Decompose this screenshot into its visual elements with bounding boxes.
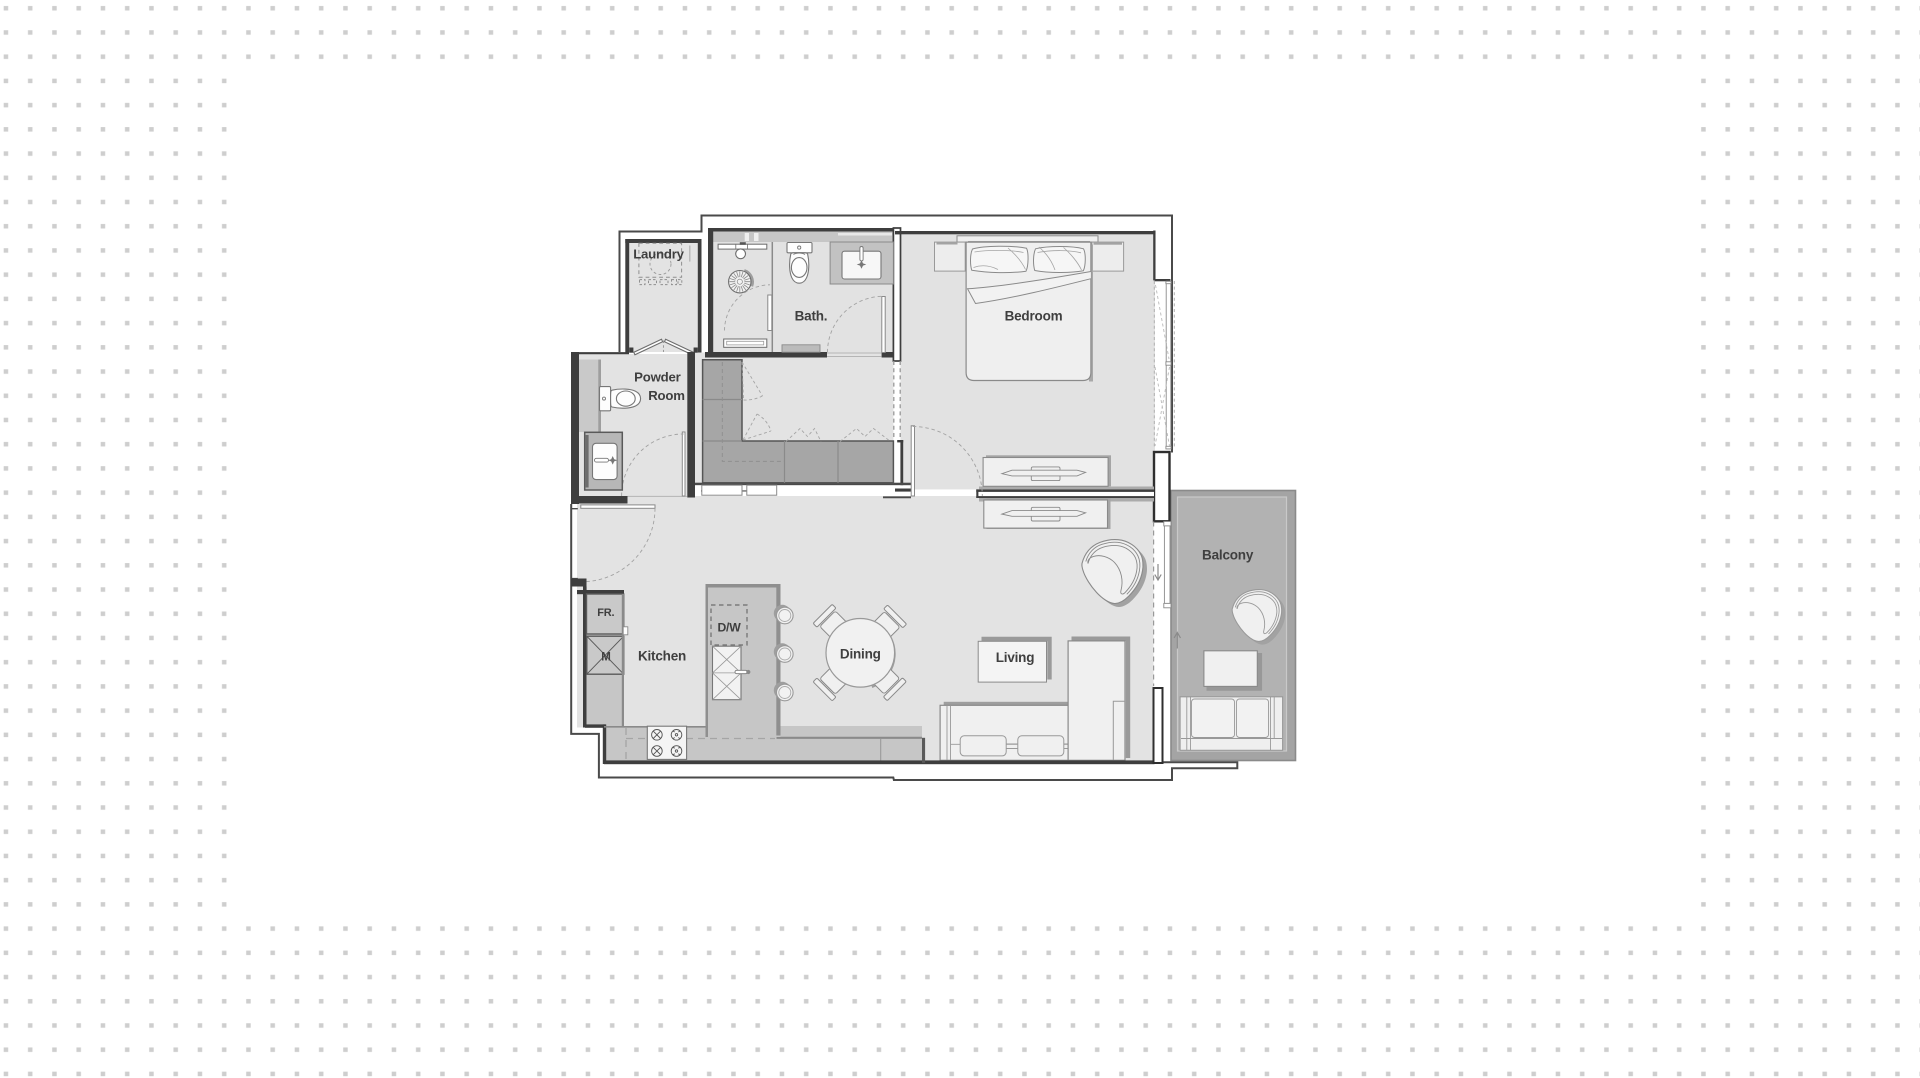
svg-text:Laundry: Laundry xyxy=(633,246,684,261)
svg-text:FR.: FR. xyxy=(597,607,614,619)
svg-text:Balcony: Balcony xyxy=(1202,548,1254,563)
svg-text:Room: Room xyxy=(648,388,685,403)
svg-text:D/W: D/W xyxy=(717,620,741,634)
svg-text:Bedroom: Bedroom xyxy=(1005,309,1063,324)
svg-text:Dining: Dining xyxy=(840,646,881,661)
svg-text:Powder: Powder xyxy=(634,370,680,385)
svg-text:Kitchen: Kitchen xyxy=(638,649,686,664)
svg-text:M: M xyxy=(601,651,610,663)
svg-text:Bath.: Bath. xyxy=(795,309,828,324)
svg-text:Living: Living xyxy=(996,650,1035,665)
